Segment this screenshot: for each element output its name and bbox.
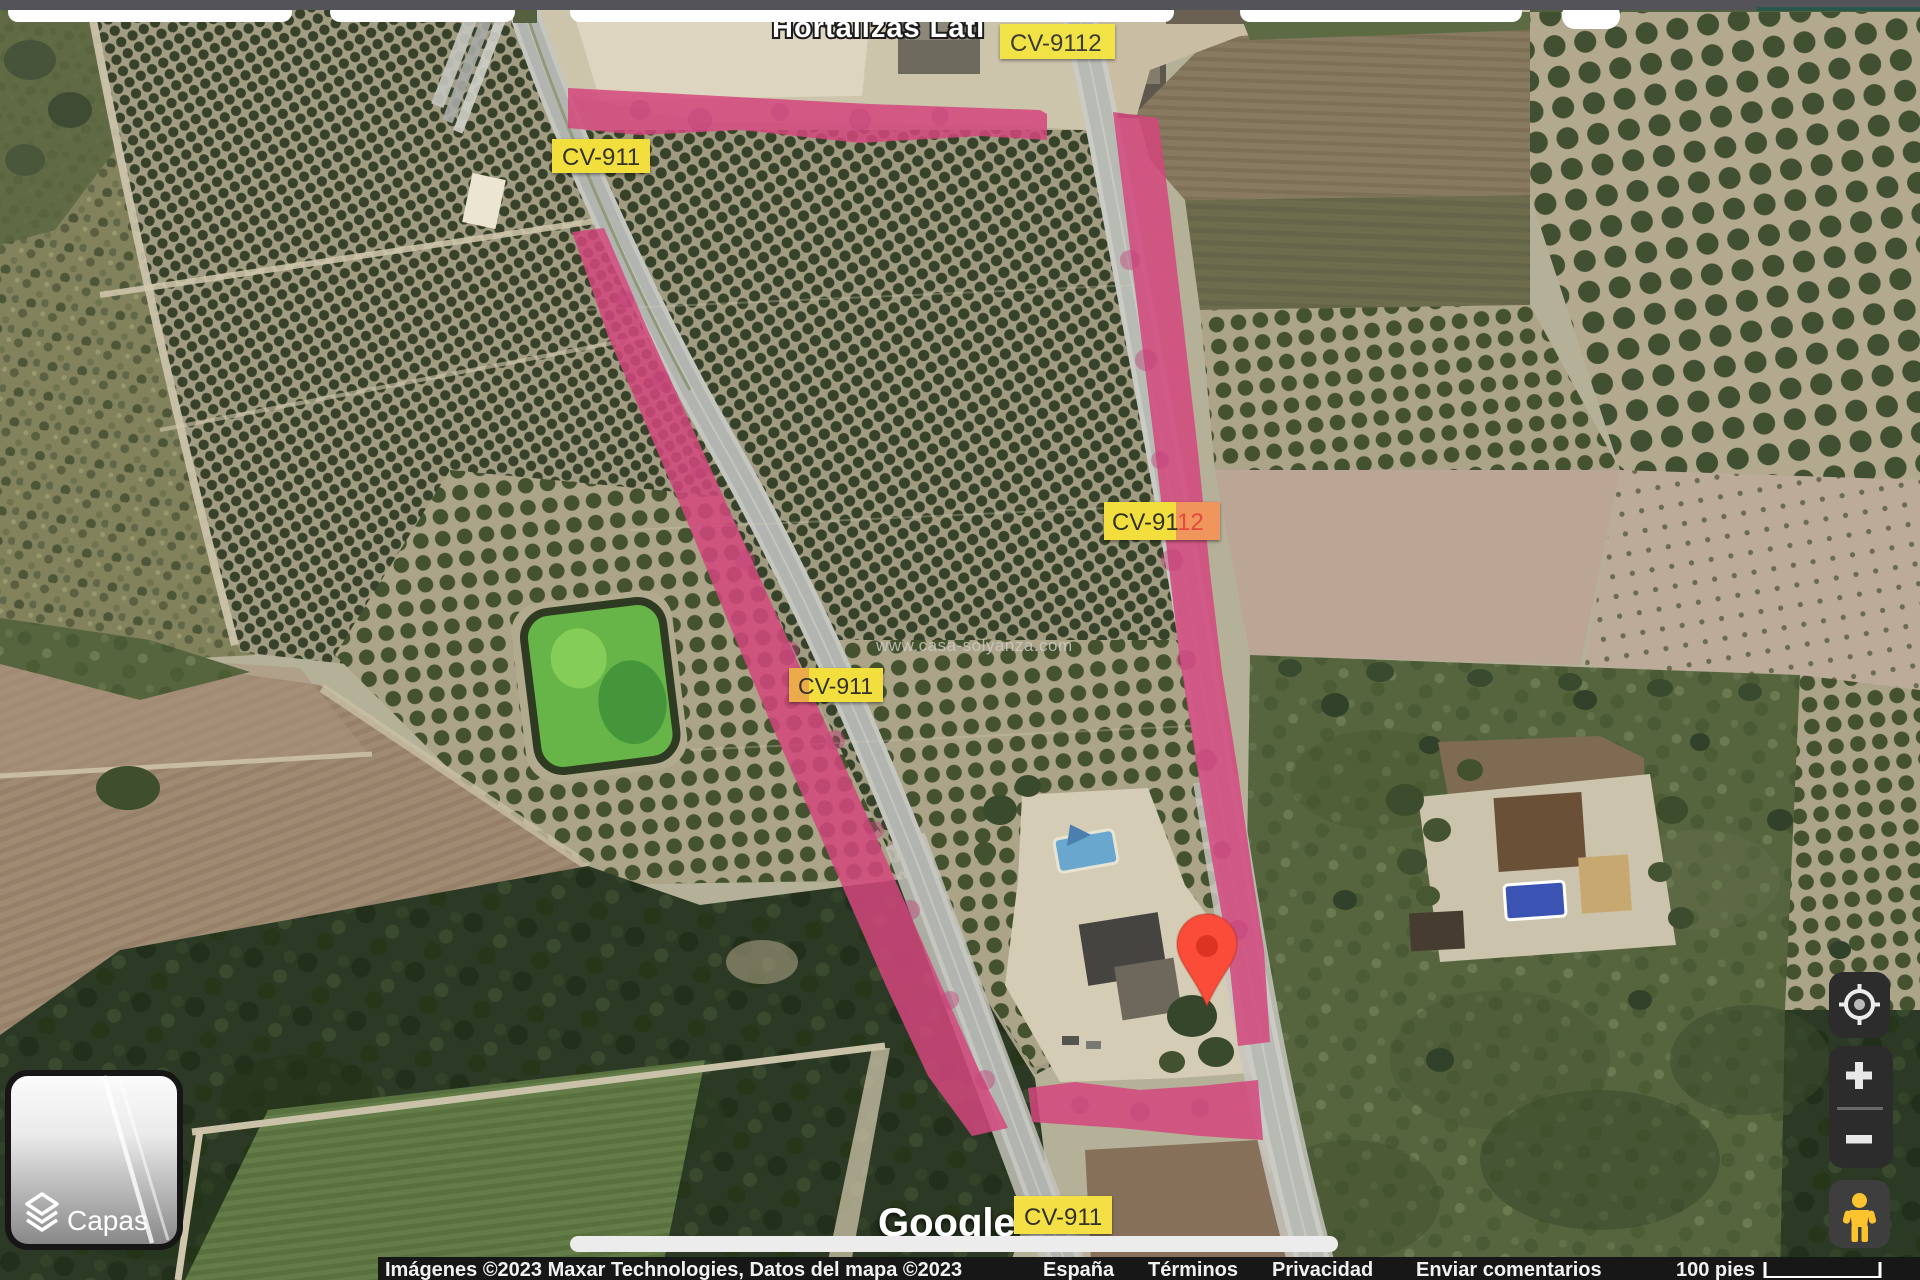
svg-text:España: España bbox=[1043, 1259, 1115, 1280]
svg-text:12: 12 bbox=[1177, 509, 1204, 536]
svg-text:Privacidad: Privacidad bbox=[1272, 1259, 1373, 1280]
svg-text:Capas: Capas bbox=[67, 1205, 148, 1236]
svg-text:CV-911: CV-911 bbox=[1024, 1204, 1102, 1231]
svg-text:Imágenes ©2023 Maxar Technolog: Imágenes ©2023 Maxar Technologies, Datos… bbox=[385, 1259, 962, 1280]
svg-text:www.casa-solyanza.com: www.casa-solyanza.com bbox=[875, 636, 1073, 655]
svg-text:CV-9112: CV-9112 bbox=[1010, 30, 1102, 57]
svg-text:Enviar comentarios: Enviar comentarios bbox=[1416, 1259, 1602, 1280]
svg-text:100 pies: 100 pies bbox=[1676, 1259, 1755, 1280]
svg-text:CV-911: CV-911 bbox=[798, 673, 873, 699]
svg-text:CV-91: CV-91 bbox=[1112, 509, 1179, 536]
svg-text:Términos: Términos bbox=[1148, 1259, 1238, 1280]
svg-text:CV-911: CV-911 bbox=[562, 144, 640, 171]
